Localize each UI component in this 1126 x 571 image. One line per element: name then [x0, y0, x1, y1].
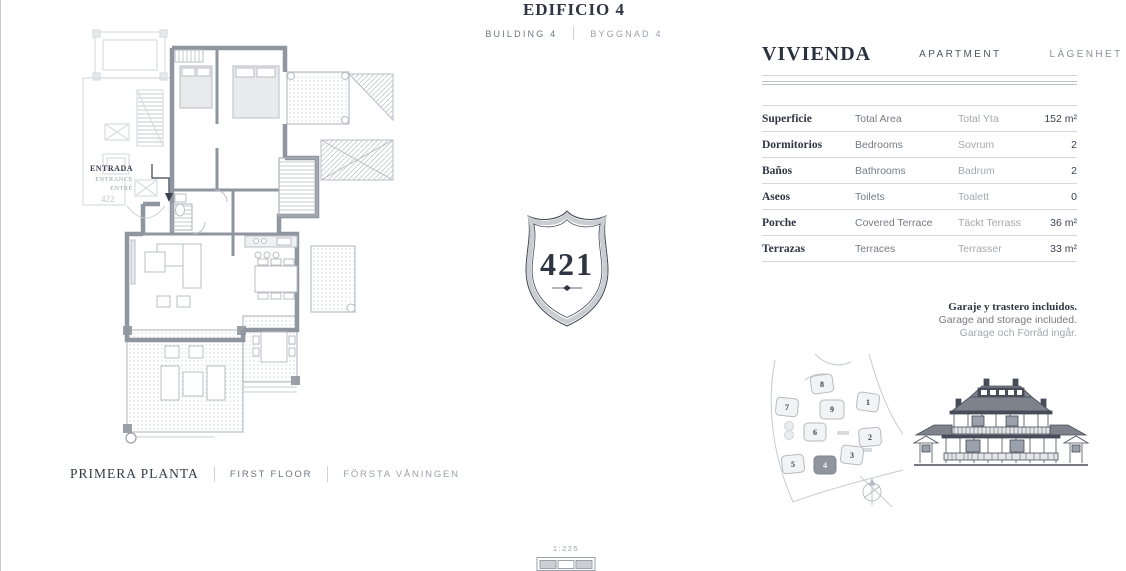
spec-table: Superficie Total Area Total Yta 152 m² D…: [762, 105, 1077, 262]
spec-label-es: Porche: [762, 217, 855, 229]
table-row: Terrazas Terraces Terrasser 33 m²: [762, 236, 1077, 262]
spec-value: 2: [1071, 165, 1077, 177]
spec-label-sv: Total Yta: [958, 113, 1044, 125]
spec-label-sv: Sovrum: [958, 139, 1071, 151]
scale-bar-segment: [539, 560, 556, 569]
title-double-rule: [762, 81, 1077, 85]
spec-label-es: Superficie: [762, 113, 855, 125]
spec-value: 33 m²: [1050, 243, 1077, 255]
spec-label-en: Terraces: [855, 243, 958, 255]
building-header: EDIFICIO 4 BUILDING 4 BYGGNAD 4: [434, 0, 714, 40]
details-title-en: APARTMENT: [919, 49, 1001, 60]
site-pool: [785, 422, 794, 440]
floor-caption-en: FIRST FLOOR: [230, 469, 312, 480]
table-row: Dormitorios Bedrooms Sovrum 2: [762, 132, 1077, 158]
floor-caption: PRIMERA PLANTA FIRST FLOOR FÖRSTA VÅNING…: [70, 466, 460, 482]
divider: [214, 466, 215, 482]
page-edge-line: [0, 0, 1, 571]
floor-caption-sv: FÖRSTA VÅNINGEN: [343, 469, 460, 480]
spec-label-es: Baños: [762, 165, 855, 177]
garage-note-sv: Garage och Förråd ingår.: [762, 327, 1077, 340]
garage-note-es: Garaje y trastero incluidos.: [762, 301, 1077, 314]
svg-text:4: 4: [823, 461, 827, 470]
spec-label-en: Covered Terrace: [855, 217, 958, 229]
table-row: Superficie Total Area Total Yta 152 m²: [762, 106, 1077, 132]
entrance-label-es: ENTRADA: [90, 164, 133, 173]
spec-label-en: Bedrooms: [855, 139, 958, 151]
table-row: Porche Covered Terrace Täckt Terrass 36 …: [762, 210, 1077, 236]
unit-details-panel: VIVIENDA APARTMENT LÄGENHET Superficie T…: [762, 43, 1077, 262]
divider: [573, 27, 574, 40]
entrance-annotation: ENTRADA ENTRANCE ENTRÉ 422: [90, 164, 173, 218]
svg-text:9: 9: [830, 405, 834, 414]
scale-bar-segment: [576, 560, 593, 569]
scale-label: 1:225: [537, 544, 596, 553]
garage-note-en: Garage and storage included.: [762, 314, 1077, 327]
site-roads: [771, 354, 903, 507]
building-title: EDIFICIO 4: [434, 0, 714, 20]
floor-caption-es: PRIMERA PLANTA: [70, 466, 199, 482]
spec-label-sv: Terrasser: [958, 243, 1050, 255]
spec-value: 152 m²: [1044, 113, 1077, 125]
svg-text:6: 6: [813, 428, 817, 437]
details-title-es: VIVIENDA: [762, 43, 871, 66]
spec-value: 2: [1071, 139, 1077, 151]
divider: [327, 466, 328, 482]
spec-label-es: Aseos: [762, 191, 855, 203]
title-rule: [762, 75, 1077, 76]
spec-label-en: Bathrooms: [855, 165, 958, 177]
unit-badge: 421: [521, 207, 613, 331]
details-title-sv: LÄGENHET: [1049, 49, 1122, 60]
scale-bar: [537, 557, 596, 571]
svg-text:7: 7: [785, 403, 789, 412]
svg-text:2: 2: [868, 433, 872, 442]
table-row: Aseos Toilets Toalett 0: [762, 184, 1077, 210]
svg-text:5: 5: [791, 460, 795, 469]
spec-value: 36 m²: [1050, 217, 1077, 229]
building-subtitle-sv: BYGGNAD 4: [590, 29, 662, 39]
spec-label-sv: Badrum: [958, 165, 1071, 177]
spec-value: 0: [1071, 191, 1077, 203]
table-row: Baños Bathrooms Badrum 2: [762, 158, 1077, 184]
svg-text:8: 8: [820, 380, 824, 389]
spec-label-en: Toilets: [855, 191, 958, 203]
site-plan: 1 2 3 4 5 6 7 8 9: [765, 352, 905, 507]
svg-text:1: 1: [866, 398, 870, 407]
spec-label-en: Total Area: [855, 113, 958, 125]
building-elevation: [912, 377, 1090, 469]
scale-indicator: 1:225: [537, 544, 596, 571]
svg-text:3: 3: [850, 451, 854, 460]
entrance-label-en: ENTRANCE: [95, 176, 133, 183]
floor-plan-drawing: ENTRADA ENTRANCE ENTRÉ 422: [65, 28, 395, 463]
garage-note: Garaje y trastero incluidos. Garage and …: [762, 301, 1077, 340]
adjacent-unit-number: 422: [101, 194, 115, 204]
spec-label-es: Dormitorios: [762, 139, 855, 151]
compass-icon: [863, 479, 881, 505]
scale-bar-segment: [557, 560, 574, 569]
spec-label-sv: Toalett: [958, 191, 1071, 203]
spec-label-es: Terrazas: [762, 243, 855, 255]
building-subtitle: BUILDING 4 BYGGNAD 4: [434, 27, 714, 40]
spec-label-sv: Täckt Terrass: [958, 217, 1050, 229]
building-subtitle-en: BUILDING 4: [485, 29, 557, 39]
entrance-label-sv: ENTRÉ: [110, 184, 133, 192]
details-title: VIVIENDA APARTMENT LÄGENHET: [762, 43, 1077, 66]
unit-number: 421: [540, 246, 594, 282]
